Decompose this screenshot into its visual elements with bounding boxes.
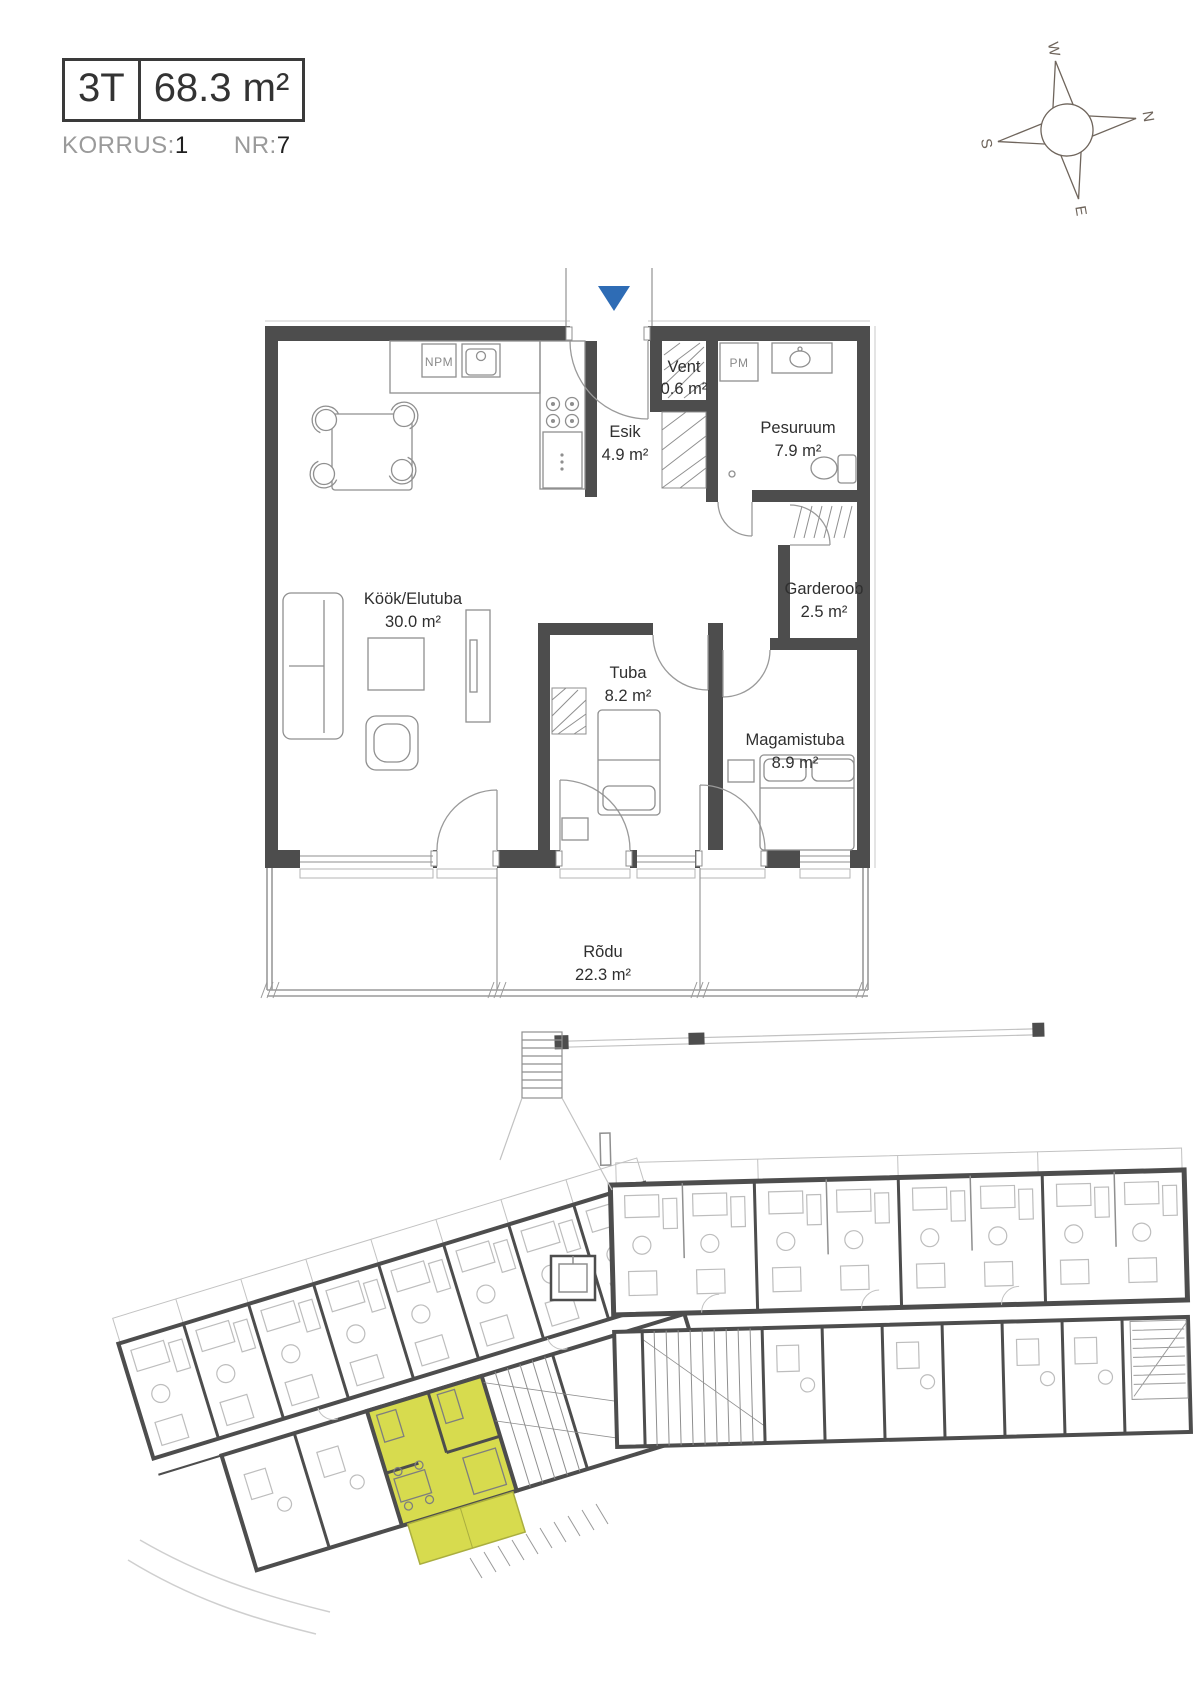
room-label-magamistuba: Magamistuba [745, 731, 845, 749]
elevator [551, 1256, 595, 1300]
tv-bench [466, 610, 490, 722]
room-label-vent: Vent [667, 358, 700, 376]
washer-label: PM [730, 356, 749, 370]
compass-label-south: S [977, 137, 995, 150]
sofa [283, 593, 343, 739]
room-label-garderoob: Garderoob [785, 580, 864, 598]
compass-label-north: N [1139, 110, 1158, 124]
room-label-pesuruum: Pesuruum [760, 419, 835, 437]
compass-label-west: W [1044, 41, 1063, 59]
room-label-rodu: Rõdu [583, 943, 622, 961]
room-labels: Köök/Elutuba 30.0 m² Esik 4.9 m² Vent 0.… [364, 355, 864, 984]
living-furniture [283, 396, 490, 770]
entrance-arrow-icon [598, 286, 630, 311]
room-area-esik: 4.9 m² [602, 446, 649, 464]
room-area-vent: 0.6 m² [661, 380, 708, 398]
balcony [261, 868, 868, 998]
apartment-plan: Köök/Elutuba 30.0 m² Esik 4.9 m² Vent 0.… [261, 268, 875, 998]
room-area-pesuruum: 7.9 m² [775, 442, 822, 460]
room-label-esik: Esik [609, 423, 641, 441]
walls [265, 326, 870, 868]
room-label-tuba: Tuba [610, 664, 648, 682]
site-right-wing [554, 1019, 1191, 1448]
site-plan [111, 1019, 1191, 1634]
tuba-nightstand [562, 818, 588, 840]
floorplan-page: 3T 68.3 m² KORRUS:1 NR:7 [0, 0, 1200, 1697]
room-area-magamistuba: 8.9 m² [772, 754, 819, 772]
room-area-tuba: 8.2 m² [605, 687, 652, 705]
plan-drawing: N E S W [0, 0, 1200, 1697]
compass-circle [1037, 100, 1097, 160]
tuba-wardrobe-hatch [552, 688, 586, 734]
stove-icon [547, 398, 579, 428]
magamistuba-nightstand [728, 760, 754, 782]
compass-label-east: E [1071, 205, 1089, 218]
compass-rose: N E S W [963, 27, 1171, 231]
doors [437, 341, 830, 850]
washbasin [772, 343, 832, 373]
hall-closet-hatch [662, 412, 706, 488]
room-area-kook-elutuba: 30.0 m² [385, 613, 441, 631]
room-area-garderoob: 2.5 m² [801, 603, 848, 621]
coffee-table [368, 638, 424, 690]
kitchen-furniture [390, 341, 585, 489]
fridge [543, 432, 582, 488]
sink [462, 344, 500, 377]
dishwasher-label: NPM [425, 355, 453, 369]
armchair [366, 716, 418, 770]
floor-drain [729, 471, 735, 477]
room-label-kook-elutuba: Köök/Elutuba [364, 590, 463, 608]
room-area-rodu: 22.3 m² [575, 966, 631, 984]
